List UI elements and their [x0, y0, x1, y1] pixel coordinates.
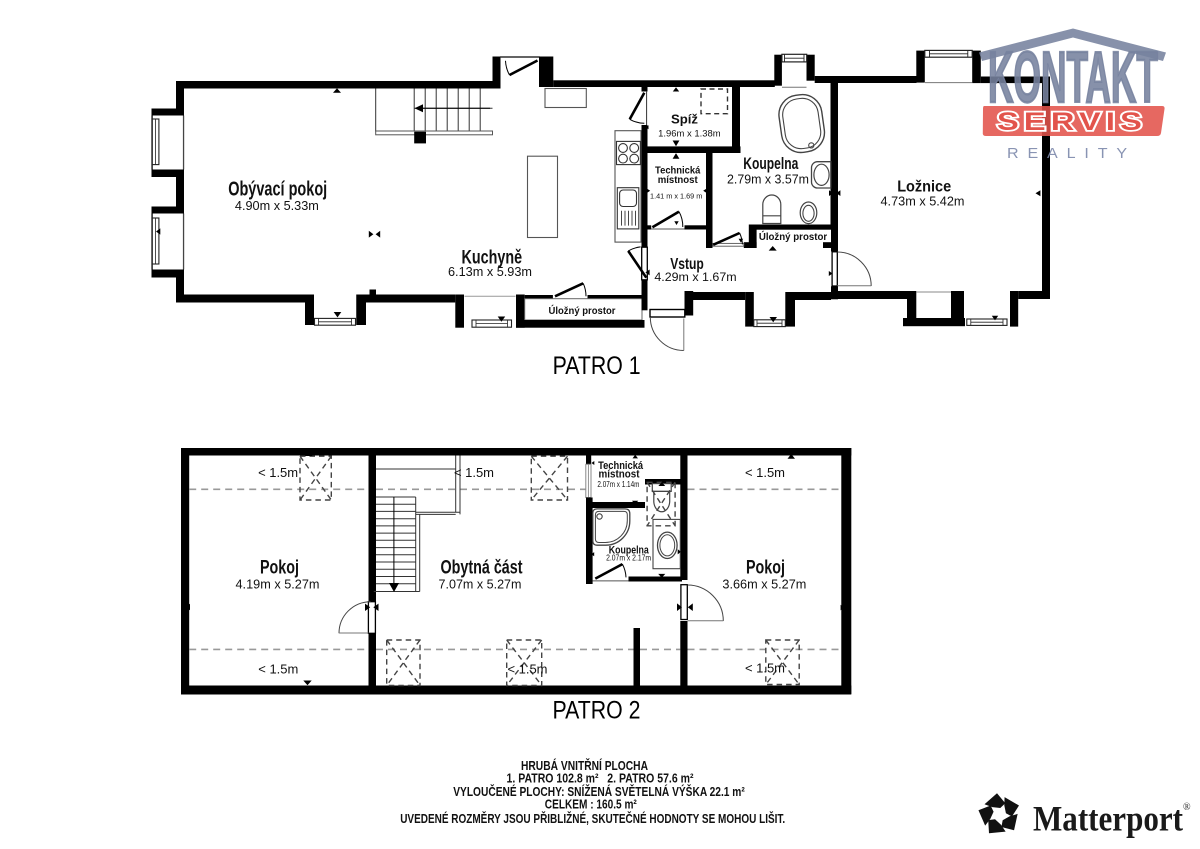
- svg-text:< 1.5m: < 1.5m: [745, 465, 785, 480]
- svg-text:3.66m x 5.27m: 3.66m x 5.27m: [722, 578, 806, 592]
- svg-text:Koupelna: Koupelna: [743, 155, 799, 173]
- svg-text:Obývací pokoj: Obývací pokoj: [228, 178, 327, 200]
- svg-text:Ložnice: Ložnice: [897, 178, 951, 195]
- svg-text:1.41 m x 1.69 m: 1.41 m x 1.69 m: [650, 191, 702, 200]
- svg-text:SERVIS: SERVIS: [997, 108, 1147, 136]
- svg-text:Pokoj: Pokoj: [746, 558, 785, 579]
- svg-text:< 1.5m: < 1.5m: [258, 662, 298, 677]
- svg-text:< 1.5m: < 1.5m: [745, 661, 785, 676]
- svg-text:UVEDENÉ ROZMĚRY JSOU PŘIBLIŽNÉ: UVEDENÉ ROZMĚRY JSOU PŘIBLIŽNÉ, SKUTEČNÉ…: [400, 811, 785, 826]
- svg-text:2.79m x 3.57m: 2.79m x 3.57m: [727, 173, 809, 187]
- svg-text:Úložný prostor: Úložný prostor: [759, 230, 827, 243]
- svg-text:< 1.5m: < 1.5m: [258, 465, 298, 480]
- svg-text:< 1.5m: < 1.5m: [508, 662, 548, 677]
- svg-text:6.13m x 5.93m: 6.13m x 5.93m: [448, 265, 532, 279]
- svg-text:Matterport: Matterport: [1033, 798, 1183, 838]
- svg-text:4.90m x 5.33m: 4.90m x 5.33m: [235, 199, 319, 213]
- svg-text:2.07m x 1.14m: 2.07m x 1.14m: [597, 479, 639, 489]
- svg-text:1.96m x 1.38m: 1.96m x 1.38m: [658, 128, 721, 138]
- svg-text:4.73m x 5.42m: 4.73m x 5.42m: [881, 195, 965, 209]
- svg-text:4.29m x 1.67m: 4.29m x 1.67m: [654, 270, 736, 284]
- svg-text:7.07m x 5.27m: 7.07m x 5.27m: [439, 578, 522, 592]
- svg-text:Spíž: Spíž: [671, 112, 698, 126]
- svg-text:Úložný prostor: Úložný prostor: [549, 304, 616, 317]
- svg-text:Obytná část: Obytná část: [441, 558, 524, 579]
- svg-text:Pokoj: Pokoj: [260, 558, 299, 579]
- svg-text:®: ®: [1183, 802, 1191, 813]
- svg-text:místnost: místnost: [658, 174, 698, 186]
- svg-text:< 1.5m: < 1.5m: [454, 465, 494, 480]
- svg-text:CELKEM : 160.5 m²: CELKEM : 160.5 m²: [545, 797, 638, 812]
- svg-text:PATRO 1: PATRO 1: [553, 352, 641, 380]
- svg-text:REALITY: REALITY: [1007, 146, 1136, 162]
- svg-text:4.19m x 5.27m: 4.19m x 5.27m: [236, 577, 320, 591]
- svg-text:PATRO 2: PATRO 2: [553, 697, 641, 725]
- svg-text:2.07m x 2.17m: 2.07m x 2.17m: [606, 552, 651, 562]
